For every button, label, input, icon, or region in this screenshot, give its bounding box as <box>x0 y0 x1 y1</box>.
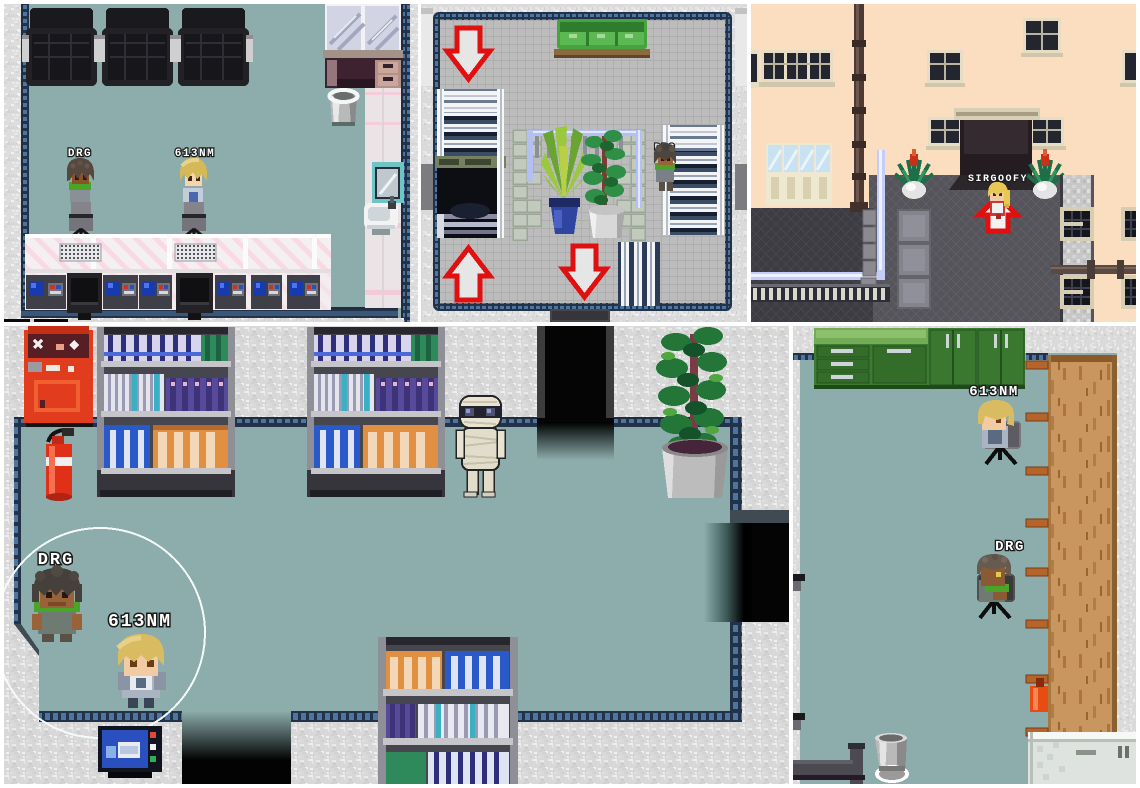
svg-text:DRG: DRG <box>995 539 1025 555</box>
svg-text:613NM: 613NM <box>969 384 1019 400</box>
svg-text:613NM: 613NM <box>108 612 172 632</box>
